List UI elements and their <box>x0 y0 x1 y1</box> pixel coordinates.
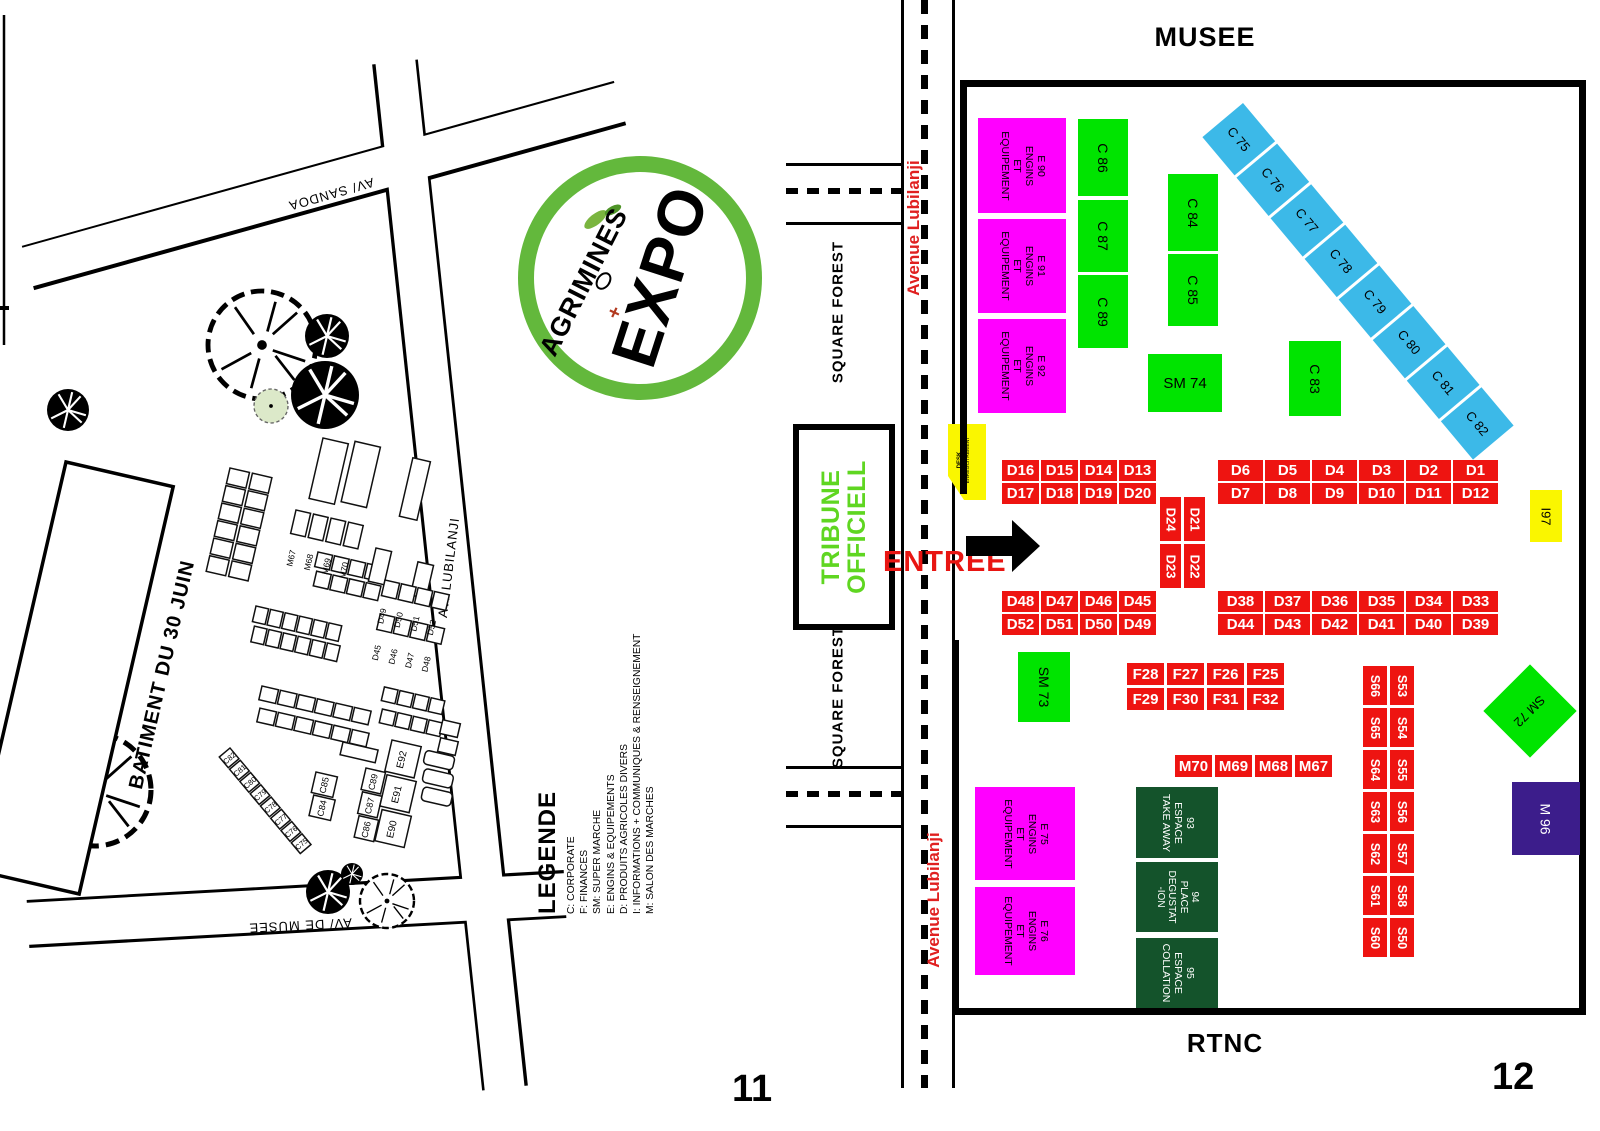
side-street-line <box>786 163 901 166</box>
booth-grid-d-ne: D6D5D4D3D2D1 D7D8D9D10D11D12 <box>1218 460 1498 504</box>
page-edge-marks <box>0 15 9 345</box>
booth-e76: E 76ENGINSETEQUIPEMENT <box>975 887 1075 975</box>
legend-item: E: ENGINS & EQUIPEMENTS <box>605 596 618 914</box>
booth-e75: E 75ENGINSETEQUIPEMENT <box>975 787 1075 880</box>
side-street-dashed-line <box>786 791 901 797</box>
desk-enregistrement: DESK ENREGISTREMENT <box>944 420 990 506</box>
booth-e90: E 90ENGINSETEQUIPEMENT <box>978 118 1066 213</box>
booth-i97: I97 <box>1530 490 1562 542</box>
side-street-dashed-line <box>786 188 901 194</box>
page-number-right: 12 <box>1492 1056 1534 1099</box>
legend-item: I: INFORMATIONS + COMMUNIQUES & RENSEIGN… <box>631 596 644 914</box>
booth-c84: C 84 <box>1168 174 1218 251</box>
svg-text:D47: D47 <box>403 651 416 669</box>
tribune-officielle: TRIBUNE OFFICIELL <box>793 424 895 630</box>
legend-item: D: PRODUITS AGRICOLES DIVERS <box>618 596 631 914</box>
hall-border-left-lower <box>952 640 959 1015</box>
legend-item: SM: SUPER MARCHE <box>591 596 604 914</box>
agrimines-expo-logo: AGRIMINES EXPO + <box>518 156 762 400</box>
expo-plan-spread: AV/ SANDOA AV/ DE MUSEE AV/ LUBILANJI BA… <box>0 0 1600 1131</box>
hall-border-left-upper <box>960 80 967 494</box>
booth-row-c75-c82: C 75 C 76 C 77 C 78 C 79 C 80 C 81 C 82 <box>1202 103 1513 460</box>
booth-c85: C 85 <box>1168 254 1218 326</box>
place-degustation: 94PLACEDEGUSTAT-ION <box>1136 862 1218 932</box>
booth-grid-d-sw: D48D47D46D45 D52D51D50D49 <box>1002 591 1156 635</box>
entree-arrow-icon <box>938 508 1044 586</box>
legend-item: M: SALON DES MARCHES <box>644 596 657 914</box>
booth-c89: C 89 <box>1078 275 1128 348</box>
booth-grid-d-se: D38D37D36D35D34D33 D44D43D42D41D40D39 <box>1218 591 1498 635</box>
booth-grid-f: F28F27F26F25 F29F30F31F32 <box>1127 663 1284 710</box>
svg-text:M67: M67 <box>284 549 298 568</box>
booth-c87: C 87 <box>1078 200 1128 272</box>
legend: LEGENDE C: CORPORATE F: FINANCES SM: SUP… <box>534 596 646 914</box>
booth-e92: E 92ENGINSETEQUIPEMENT <box>978 319 1066 413</box>
booth-c83: C 83 <box>1289 341 1341 416</box>
booth-sm72: SM 72 <box>1483 664 1576 757</box>
booths-c-pair: C85 C84 <box>306 772 340 820</box>
hall-border-right <box>1579 80 1586 1015</box>
side-street-line <box>786 825 901 828</box>
booth-col-s-left: S66 S65 S64 S63 S62 S61 S60 <box>1363 666 1387 957</box>
booth-sm74: SM 74 <box>1148 354 1222 412</box>
hall-border-top <box>960 80 1586 87</box>
rtnc-label: RTNC <box>1150 1028 1300 1059</box>
svg-text:D45: D45 <box>370 644 383 662</box>
legend-item: F: FINANCES <box>578 596 591 914</box>
hall-border-bottom <box>952 1008 1586 1015</box>
booth-m96: M 96 <box>1512 782 1580 855</box>
legend-title: LEGENDE <box>534 596 562 914</box>
booth-row-m: M70M69M68M67 <box>1175 755 1332 777</box>
svg-text:D46: D46 <box>386 648 399 666</box>
svg-text:D48: D48 <box>419 655 432 673</box>
legend-item: C: CORPORATE <box>565 596 578 914</box>
side-street-line <box>786 222 901 225</box>
booth-e91: E 91ENGINSETEQUIPEMENT <box>978 219 1066 313</box>
page-number-left: 11 <box>732 1068 772 1111</box>
espace-collation: 95ESPACECOLLATION <box>1136 938 1218 1008</box>
booth-grid-d-center: D24 D21 D23 D22 <box>1160 497 1205 588</box>
musee-label: MUSEE <box>1120 22 1290 53</box>
espace-take-away: 93ESPACETAKE AWAY <box>1136 787 1218 858</box>
booth-grid-d-nw: D16D15D14D13 D17D18D19D20 <box>1002 460 1156 504</box>
svg-text:M68: M68 <box>302 553 316 572</box>
booth-sm73: SM 73 <box>1018 652 1070 722</box>
booths-c-diagonal: C82 C81 C80 C79 C78 C77 C76 C75 <box>219 748 311 854</box>
booth-c86: C 86 <box>1078 119 1128 196</box>
booth-col-s-right: S53 S54 S55 S56 S57 S58 S50 <box>1390 666 1414 957</box>
